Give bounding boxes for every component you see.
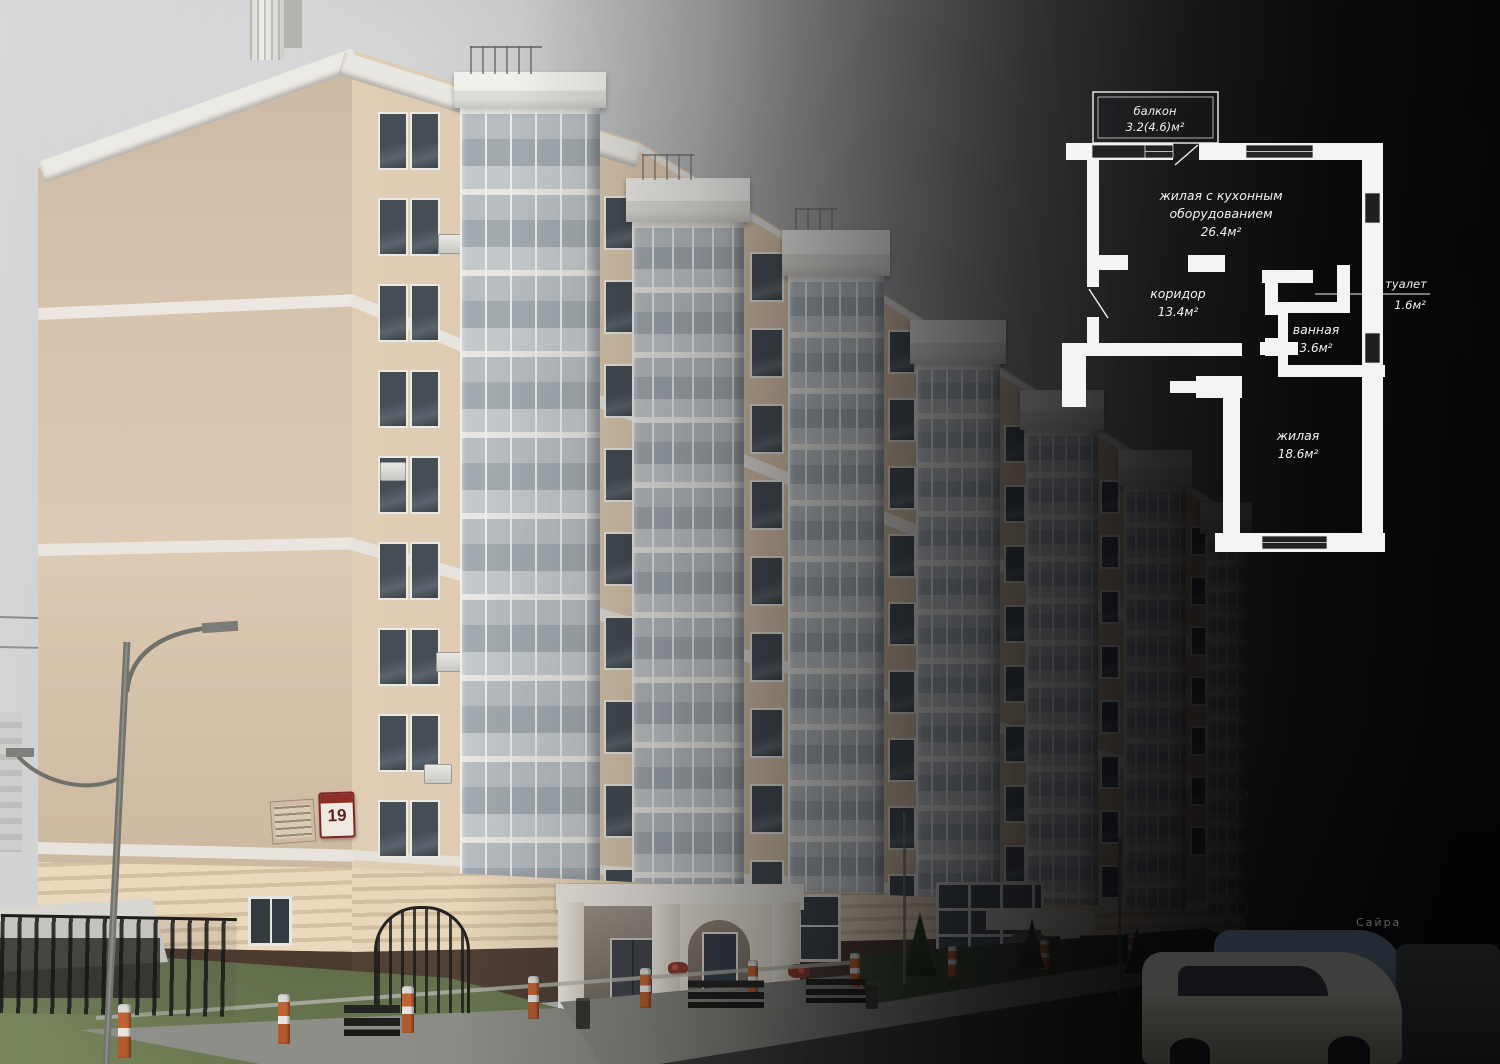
room-label-balcony: балкон <box>1134 104 1177 118</box>
car-suv-dark <box>1396 944 1500 1064</box>
car-suv-light <box>1142 952 1402 1064</box>
car-wheel <box>1170 1038 1210 1064</box>
room-area-living: 18.6м² <box>1278 447 1319 461</box>
room-label-living: жилая <box>1276 428 1320 443</box>
room-area-corridor: 13.4м² <box>1158 305 1199 319</box>
room-area-balcony: 3.2(4.6)м² <box>1126 120 1185 134</box>
room-label-corridor: коридор <box>1150 286 1206 301</box>
room-area-bathroom: 3.6м² <box>1300 341 1333 355</box>
car-wheel <box>1328 1036 1370 1064</box>
floorplan-walls <box>1062 143 1385 552</box>
room-label-living-kitchen-1: жилая с кухонным <box>1158 188 1282 203</box>
room-area-living-kitchen: 26.4м² <box>1201 225 1242 239</box>
room-label-bathroom: ванная <box>1293 322 1340 337</box>
room-label-toilet: туалет <box>1385 277 1427 291</box>
scene: 19 Сайра <box>0 0 1500 1064</box>
room-area-toilet: 1.6м² <box>1394 298 1426 312</box>
floorplan: балкон 3.2(4.6)м² жилая с кухонным обору… <box>1058 85 1450 570</box>
storefront-sign: Сайра <box>1356 916 1401 929</box>
room-label-living-kitchen-2: оборудованием <box>1169 206 1272 221</box>
car-window <box>1178 966 1328 996</box>
